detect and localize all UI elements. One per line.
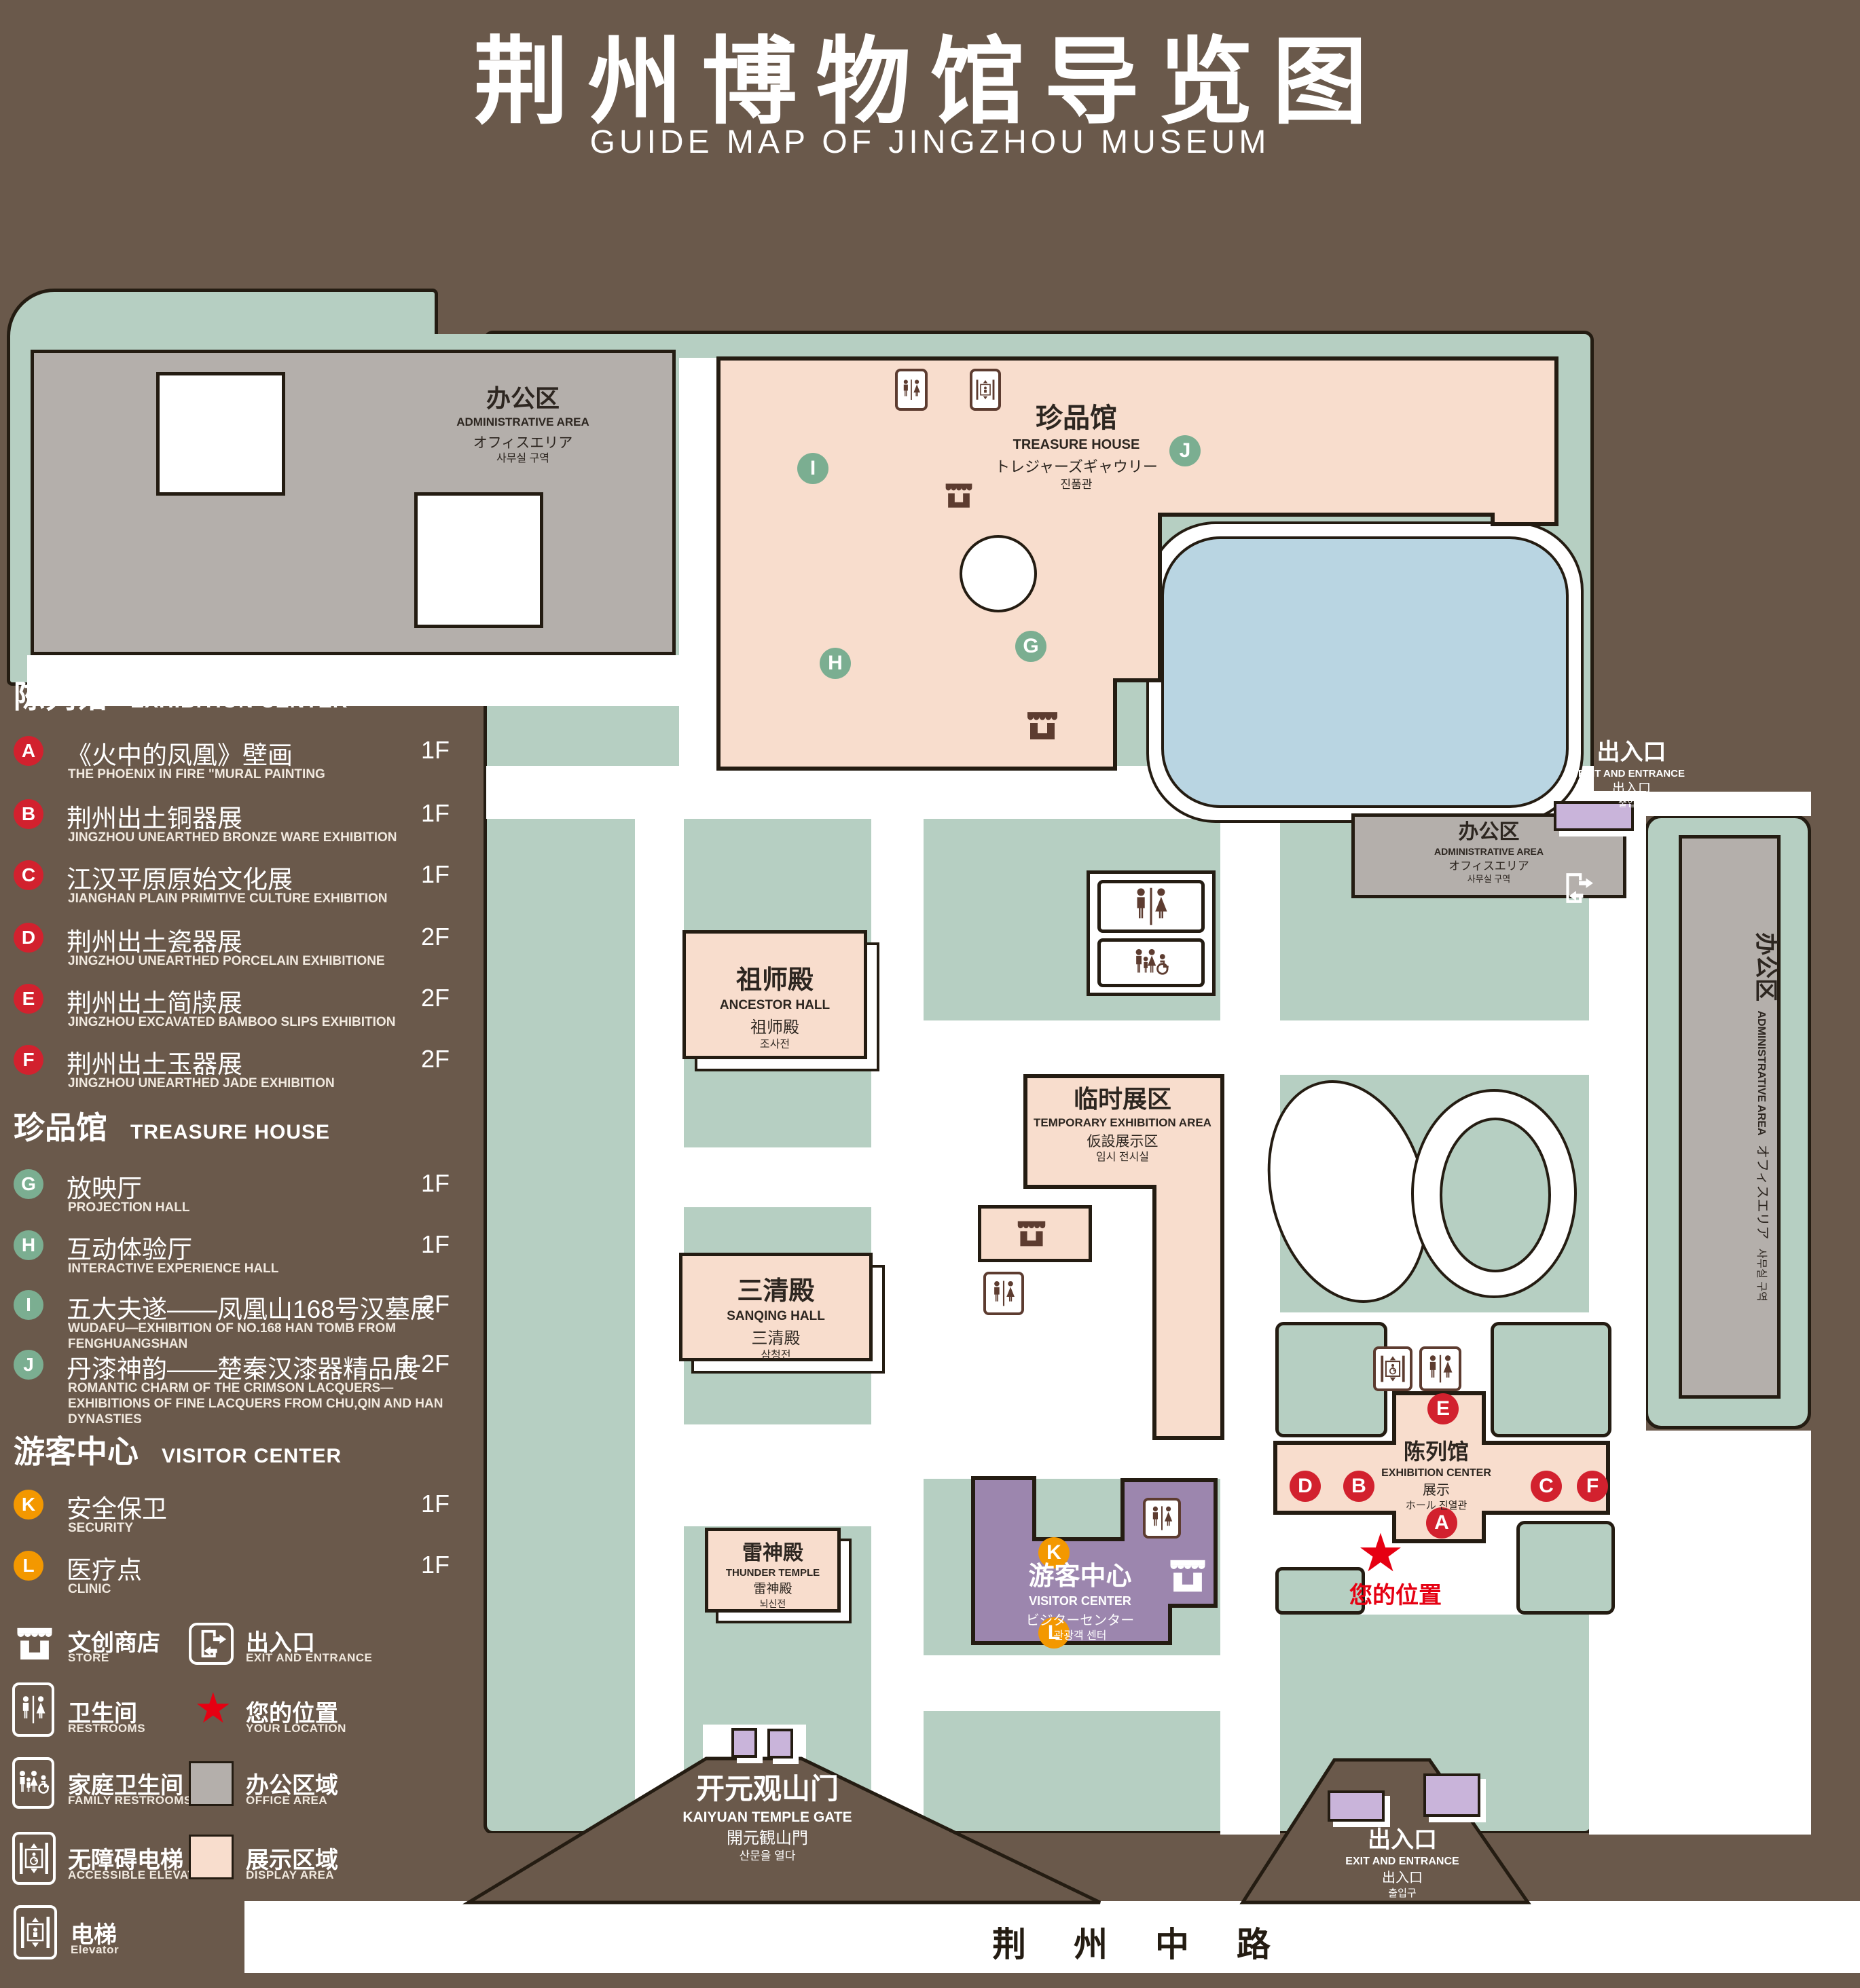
path-east-south [1646,1431,1811,1835]
admin-nw-label: 办公区 ADMINISTRATIVE AREA オフィスエリア 사무실 구역 [380,383,665,466]
path-above-visitor [924,1426,1222,1479]
location-star-icon: ★ [1357,1526,1404,1579]
lawn-exh-ne [1491,1322,1611,1437]
map-badge-h: H [820,648,851,679]
east-entrance-label: 出入口 EXIT AND ENTRANCE 出入口 출입구 [1552,737,1711,810]
legend-location-sublabel: YOUR LOCATION [246,1722,346,1735]
admin-vertical-building: 办公区 ADMINISTRATIVE AREA オフィスエリア 사무실 구역 [1679,835,1781,1399]
admin-east-label: 办公区 ADMINISTRATIVE AREA オフィスエリア 사무실 구역 [1351,819,1626,885]
legend-badge-l: L [14,1551,43,1581]
admin-nw-courtyard-1 [156,372,285,496]
store-icon [1168,1555,1207,1600]
map-badge-g: G [1015,631,1046,662]
legend-store-sublabel: STORE [68,1651,109,1665]
map-badge-c: C [1531,1471,1562,1502]
restroom-icon [983,1272,1024,1315]
legend-badge-h: H [14,1230,43,1260]
your-location-label: 您的位置 [1317,1577,1474,1610]
restroom-icon [12,1682,54,1737]
path-admin-treasure [679,358,718,767]
legend-header-exhibition: 陈列馆EXHIBITION CENTER [14,672,348,717]
legend-badge-g: G [14,1169,43,1199]
poster-title: 荆州博物馆导览图 [0,5,1860,143]
treasure-house-label: 珍品馆 TREASURE HOUSE トレジャーズギャウリー 진품관 [954,401,1199,492]
legend-badge-i: I [14,1290,43,1320]
lawn-exh-se [1516,1521,1615,1615]
kaiyuan-gate-block-right [767,1729,793,1759]
store-icon [14,1624,56,1667]
path-ns-left [635,819,684,1835]
legend-family-restroom-sublabel: FAMILY RESTROOMS [68,1794,192,1807]
exhibition-center-label: 陈列馆 EXHIBITION CENTER 展示 ホール 진열관 [1358,1438,1514,1513]
path-main-ew [486,766,1594,819]
legend-badge-e: E [14,984,43,1014]
map-badge-d: D [1290,1471,1321,1502]
store-icon [1016,1214,1047,1257]
legend-elevator-sublabel: Elevator [71,1943,119,1957]
legend-badge-f: F [14,1045,43,1075]
location-star-icon: ★ [194,1688,232,1730]
road-label: 荆 州 中 路 [876,1917,1406,1966]
accessible-elevator-icon [1373,1346,1412,1391]
legend-badge-j: J [14,1350,43,1380]
south-sidewalk [244,1833,1860,1902]
legend-display-sublabel: DISPLAY AREA [246,1869,334,1882]
map-badge-f: F [1577,1471,1608,1502]
map-badge-e: E [1427,1393,1459,1424]
exit-icon [189,1623,234,1665]
legend-badge-c: C [14,860,43,890]
restroom-icon [1419,1346,1461,1391]
office-area-swatch [189,1761,234,1806]
ancestor-hall-label: 祖师殿 ANCESTOR HALL 祖师殿 조사전 [687,964,862,1052]
path-ns-center [871,819,924,1835]
restroom-icon [1143,1498,1181,1539]
restroom-icon [895,369,928,411]
legend-badge-d: D [14,923,43,953]
visitor-center-label: 游客中心 VISITOR CENTER ビジターセンター 관광객 센터 [997,1560,1163,1644]
legend-office-sublabel: OFFICE AREA [246,1794,327,1807]
display-area-swatch [189,1835,234,1879]
legend-exit-sublabel: EXIT AND ENTRANCE [246,1651,372,1665]
store-icon [1025,703,1059,752]
thunder-temple-label: 雷神殿 THUNDER TEMPLE 雷神殿 뇌신전 [708,1540,837,1610]
legend-header-treasure: 珍品馆TREASURE HOUSE [14,1103,330,1148]
elevator-icon [14,1905,57,1959]
se-gate-block-right [1423,1773,1480,1817]
map-badge-i: I [797,453,828,484]
path-below-visitor [924,1655,1222,1711]
legend-restroom-sublabel: RESTROOMS [68,1722,145,1735]
admin-nw-courtyard-2 [414,492,543,628]
lawn-exh-nw [1275,1322,1387,1437]
sanqing-hall-label: 三清殿 SANQING HALL 三清殿 삼청전 [686,1275,866,1363]
accessible-elevator-icon [12,1832,56,1885]
path-gap-ancestor-sanqing [684,1147,871,1207]
temporary-exhibition-label: 临时展区 TEMPORARY EXHIBITION AREA 仮設展示区 임시 … [1010,1084,1235,1165]
se-gate-label: 出入口 EXIT AND ENTRANCE 出入口 출입구 [1324,1825,1480,1900]
path-east-road [1589,791,1646,1835]
admin-vertical-label: 办公区 ADMINISTRATIVE AREA オフィスエリア 사무실 구역 [1679,845,1781,1388]
legend-badge-b: B [14,799,43,829]
legend-badge-a: A [14,736,43,766]
legend-header-visitor: 游客中心VISITOR CENTER [14,1427,342,1472]
guide-map-poster: { "title": {"zh": "荆州博物馆导览图", "en": "GUI… [0,0,1860,1988]
path-gap-sanqing-thunder [684,1424,871,1526]
poster-subtitle: GUIDE MAP OF JINGZHOU MUSEUM [0,124,1860,161]
family-restroom-icon [12,1757,54,1809]
kaiyuan-gate-block-left [731,1728,757,1758]
se-gate-block-left [1328,1790,1385,1822]
family-restroom-icon [1097,938,1205,987]
restroom-icon [1097,880,1205,933]
kaiyuan-gate-label: 开元观山门 KAIYUAN TEMPLE GATE 開元観山門 산문을 열다 [645,1771,890,1864]
northeast-ground [1597,285,1860,808]
legend-badge-k: K [14,1490,43,1520]
